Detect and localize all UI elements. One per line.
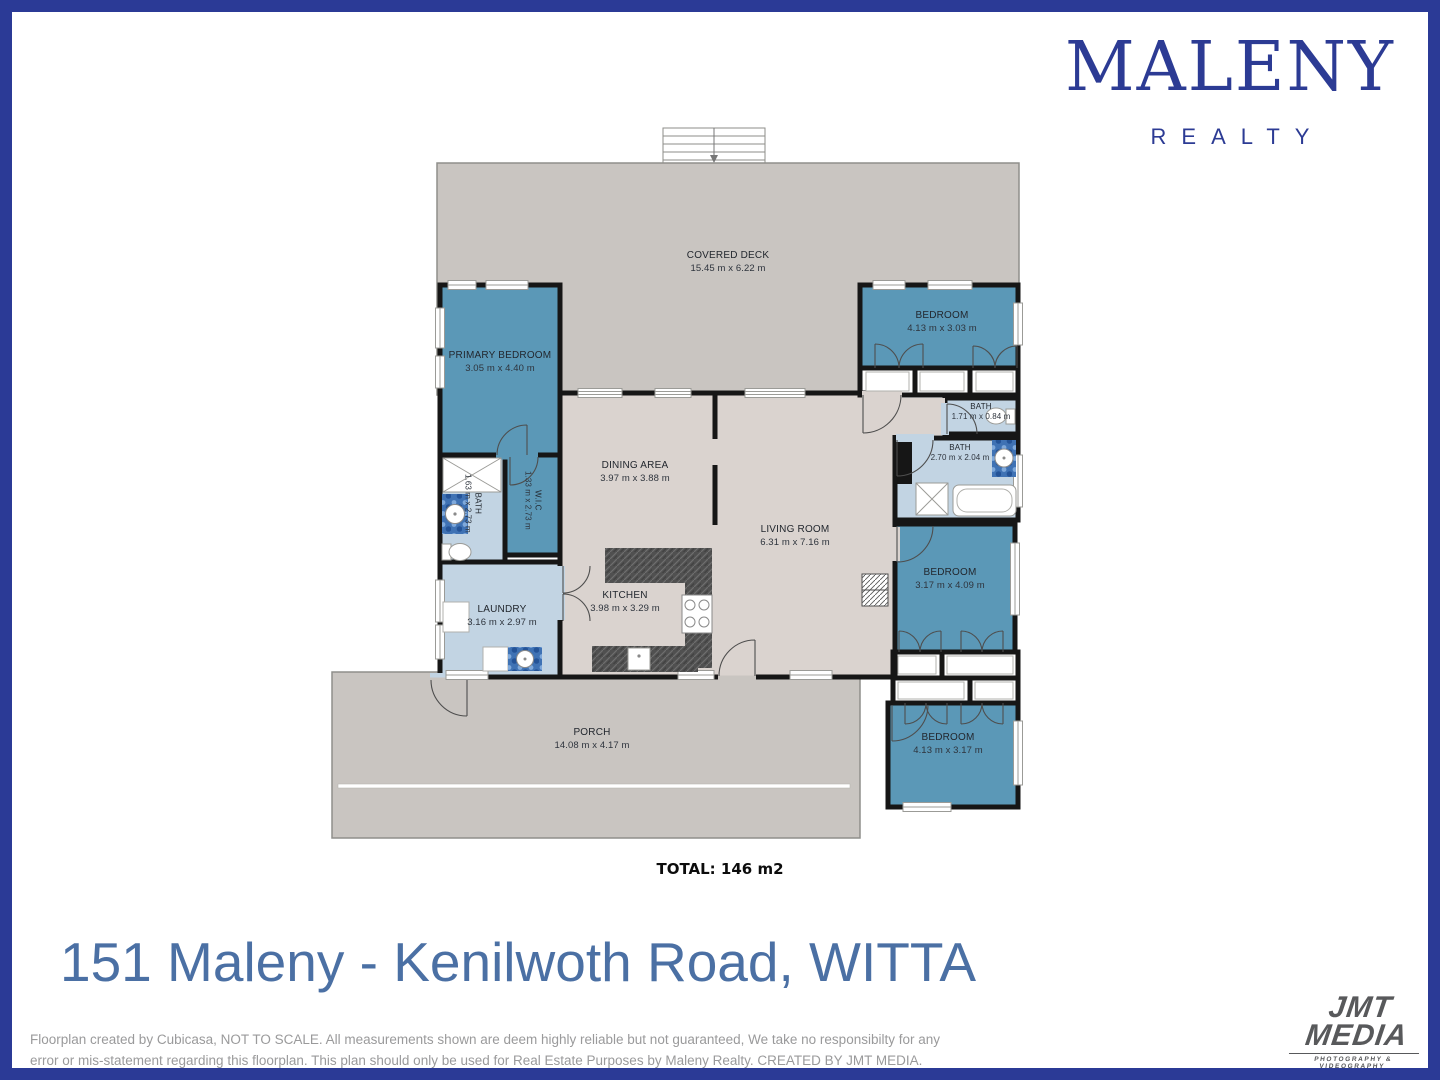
room-label-bath-left: BATH 1.63 m x 2.73 m xyxy=(462,448,483,558)
disclaimer-line-2: error or mis-statement regarding this fl… xyxy=(30,1051,940,1072)
room-label-wic: W.I.C 1.33 m x 2.73 m xyxy=(522,445,543,555)
room-label-dining: DINING AREA 3.97 m x 3.88 m xyxy=(560,459,710,485)
kitchen-sink xyxy=(628,648,650,670)
total-area-label: TOTAL: 146 m2 xyxy=(560,860,880,878)
room-label-living: LIVING ROOM 6.31 m x 7.16 m xyxy=(720,523,870,549)
room-label-bedroom-bottom-right: BEDROOM 4.13 m x 3.17 m xyxy=(873,731,1023,757)
jmt-logo-line2: MEDIA xyxy=(1290,1022,1424,1050)
room-label-laundry: LAUNDRY 3.16 m x 2.97 m xyxy=(427,603,577,629)
property-address: 151 Maleny - Kenilwoth Road, WITTA xyxy=(60,930,976,994)
room-label-bedroom-top-right: BEDROOM 4.13 m x 3.03 m xyxy=(867,309,1017,335)
brand-name: MALENY xyxy=(1040,34,1420,102)
room-label-bath-small: BATH 1.71 m x 0.84 m xyxy=(931,402,1031,423)
room-label-porch: PORCH 14.08 m x 4.17 m xyxy=(517,726,667,752)
stairs xyxy=(663,128,765,166)
jmt-logo-tagline: PHOTOGRAPHY & VIDEOGRAPHY xyxy=(1287,1053,1419,1070)
room-label-bedroom-mid-right: BEDROOM 3.17 m x 4.09 m xyxy=(875,566,1025,592)
page: MALENY REALTY xyxy=(0,0,1440,1080)
floorplan: COVERED DECK 15.45 m x 6.22 m PRIMARY BE… xyxy=(330,125,1030,840)
room-label-bath-ensuite: BATH 2.70 m x 2.04 m xyxy=(900,443,1020,464)
disclaimer-line-1: Floorplan created by Cubicasa, NOT TO SC… xyxy=(30,1030,940,1051)
laundry-bench xyxy=(483,647,508,671)
room-label-primary-bedroom: PRIMARY BEDROOM 3.05 m x 4.40 m xyxy=(425,349,575,375)
brand-tagline: REALTY xyxy=(1040,124,1420,150)
jmt-media-logo: JMT MEDIA PHOTOGRAPHY & VIDEOGRAPHY xyxy=(1287,994,1428,1070)
brand-logo: MALENY REALTY xyxy=(1040,34,1420,150)
porch-step-line xyxy=(338,784,850,788)
disclaimer: Floorplan created by Cubicasa, NOT TO SC… xyxy=(30,1030,940,1072)
porch-floor xyxy=(332,672,860,838)
room-label-covered-deck: COVERED DECK 15.45 m x 6.22 m xyxy=(628,249,828,275)
jmt-logo-line1: JMT xyxy=(1293,994,1427,1022)
